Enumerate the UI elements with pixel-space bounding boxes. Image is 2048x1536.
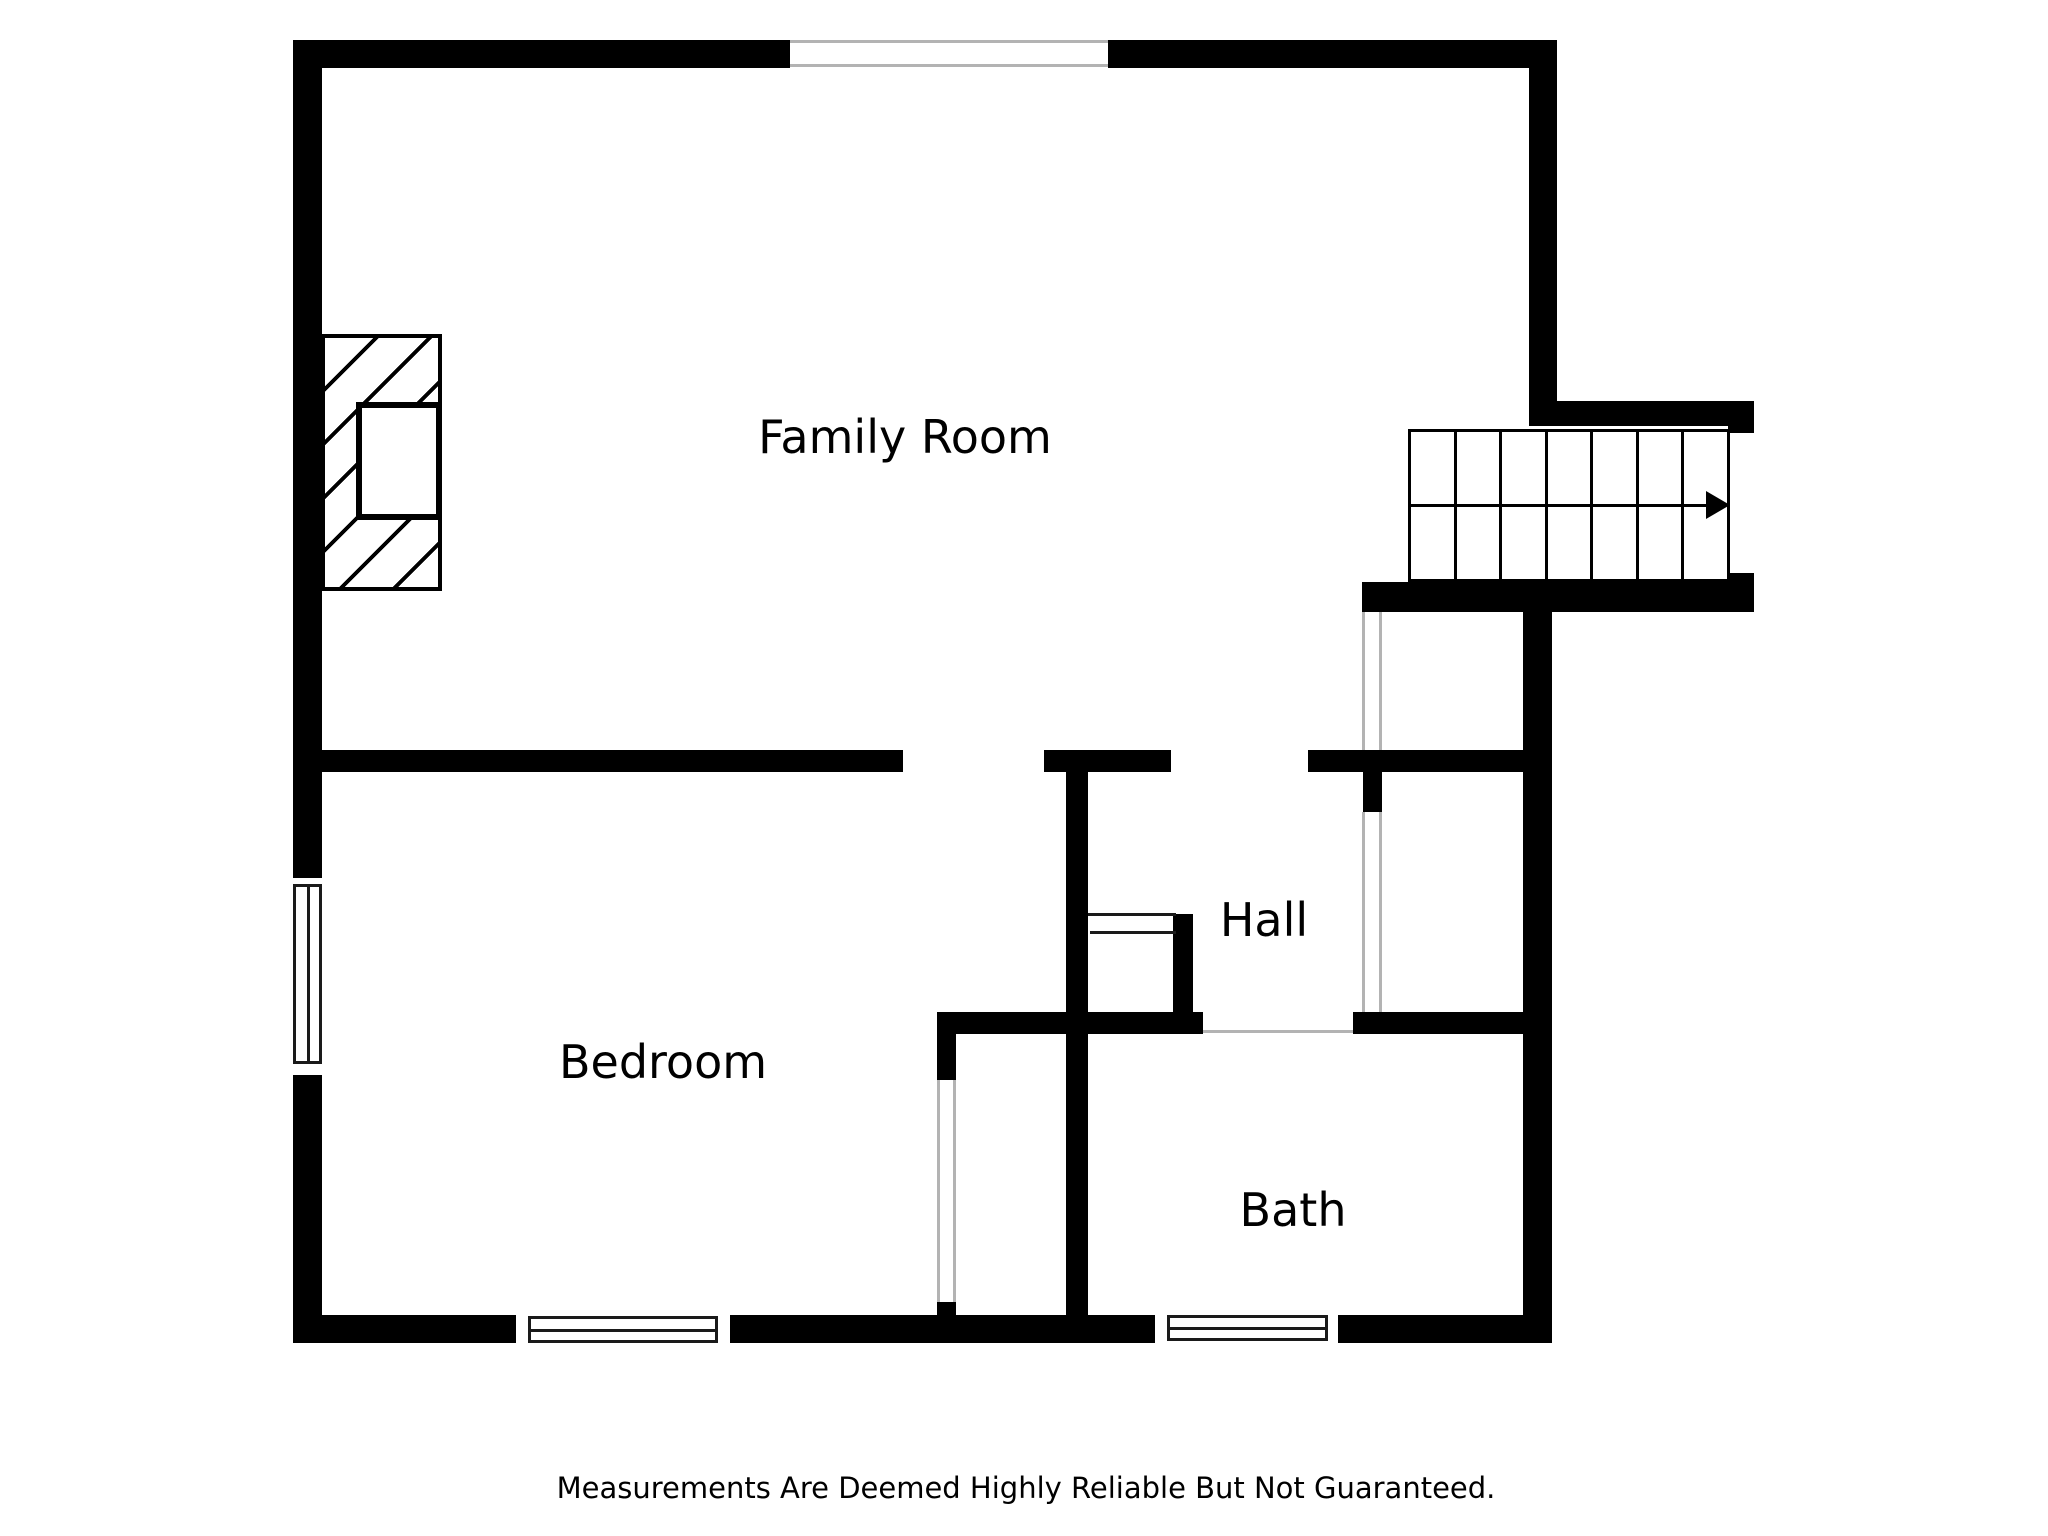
bedroom-closet-wall-stub bbox=[937, 1302, 956, 1315]
stair-opening-right-line-upper bbox=[1379, 612, 1382, 750]
staircase-direction-arrow-icon bbox=[1706, 491, 1730, 519]
disclaimer-text: Measurements Are Deemed Highly Reliable … bbox=[557, 1471, 1496, 1505]
hall-closet-door-line-outer bbox=[1088, 913, 1176, 916]
bedroom-closet-opening-right-line bbox=[953, 1080, 956, 1302]
wall-bottom-middle bbox=[730, 1315, 1155, 1343]
bath-bottom-window-mullion bbox=[1170, 1327, 1325, 1330]
hall-opening-left-line bbox=[1362, 812, 1365, 1012]
bedroom-bottom-window bbox=[528, 1316, 718, 1343]
bath-label: Bath bbox=[1240, 1183, 1347, 1237]
stair-top-wall bbox=[1529, 401, 1754, 426]
fireplace-firebox bbox=[356, 402, 442, 520]
wall-top-left bbox=[293, 40, 790, 68]
hall-opening-right-line bbox=[1379, 812, 1382, 1012]
stair-opening-left-line-upper bbox=[1362, 612, 1365, 750]
wall-bottom-left bbox=[293, 1315, 516, 1343]
hall-west-top-wall bbox=[1044, 750, 1171, 772]
bedroom-left-window-mullion bbox=[307, 887, 310, 1061]
hall-closet-door-line-inner bbox=[1090, 931, 1176, 934]
hall-top-wall bbox=[1308, 750, 1523, 772]
floor-plan: Family Room Hall Bedroom Bath Measuremen… bbox=[0, 0, 2048, 1536]
family-room-label: Family Room bbox=[758, 410, 1052, 464]
bedroom-closet-opening-left-line bbox=[937, 1080, 940, 1302]
hall-bottom-wall-right bbox=[1353, 1012, 1523, 1034]
hall-closet-bottom-wall bbox=[937, 1012, 1203, 1034]
wall-bottom-right bbox=[1338, 1315, 1552, 1343]
bedroom-left-window bbox=[293, 884, 322, 1064]
bath-door-opening-line bbox=[1203, 1030, 1353, 1033]
wall-top-right bbox=[1108, 40, 1557, 68]
hall-label: Hall bbox=[1220, 893, 1308, 947]
top-opening-lower-line bbox=[790, 64, 1108, 67]
bedroom-label: Bedroom bbox=[559, 1035, 767, 1089]
bath-bottom-window bbox=[1167, 1315, 1328, 1341]
bedroom-closet-wall-upper bbox=[937, 1034, 956, 1080]
wall-left-lower bbox=[293, 1075, 322, 1343]
wall-right-lower bbox=[1523, 612, 1552, 1343]
wall-right-upper bbox=[1529, 40, 1557, 426]
hall-closet-right-wall bbox=[1173, 914, 1193, 1012]
family-bedroom-divider-wall bbox=[322, 750, 903, 772]
stair-bottom-wall bbox=[1362, 582, 1754, 612]
stair-cap-top-right bbox=[1728, 401, 1754, 433]
staircase-run-line bbox=[1408, 504, 1710, 507]
bedroom-bottom-window-mullion bbox=[531, 1329, 715, 1332]
top-opening-upper-line bbox=[790, 40, 1108, 43]
hall-top-wall-stub bbox=[1363, 772, 1382, 812]
wall-left-upper bbox=[293, 40, 322, 878]
